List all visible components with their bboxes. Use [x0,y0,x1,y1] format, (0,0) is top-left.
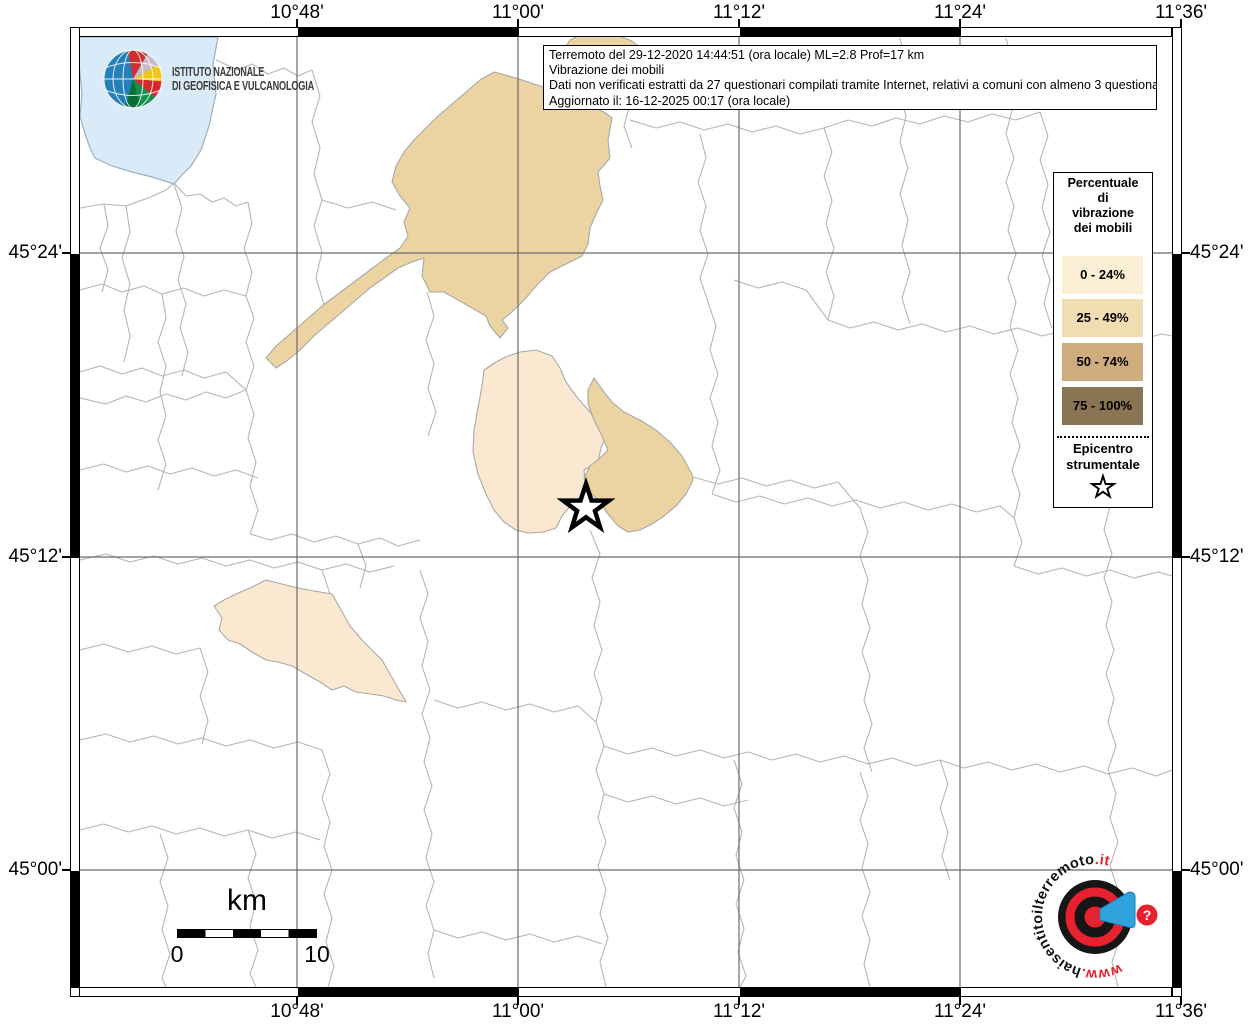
scale-bar-unit: km [202,884,292,918]
axis-label-lat: 45°24' [0,242,62,264]
legend-swatch-50-74: 50 - 74% [1062,343,1143,381]
legend-separator [1057,436,1149,438]
tick-mark [738,19,740,27]
tick-mark [1182,252,1190,254]
axis-label-lat: 45°12' [1190,546,1256,568]
tick-mark [62,556,70,558]
info-line-event: Terremoto del 29-12-2020 14:44:51 (ora l… [549,48,1151,63]
legend-star-icon [1085,473,1121,503]
tick-mark [296,997,298,1005]
legend-box: Percentuale di vibrazione dei mobili 0 -… [1053,172,1153,508]
tick-mark [1180,997,1182,1005]
legend-swatch-75-100: 75 - 100% [1062,387,1143,425]
info-line-updated: Aggiornato il: 16-12-2025 00:17 (ora loc… [549,94,1151,109]
frame-border-top [70,27,1182,37]
map-svg: ISTITUTO NAZIONALE DI GEOFISICA E VULCAN… [80,37,1172,987]
legend-swatch-25-49: 25 - 49% [1062,299,1143,337]
tick-mark [738,997,740,1005]
legend-swatch-0-24: 0 - 24% [1062,256,1143,294]
earthquake-info-box: Terremoto del 29-12-2020 14:44:51 (ora l… [543,45,1157,110]
frame-border-left [70,27,80,997]
tick-mark [1180,19,1182,27]
map-frame: ISTITUTO NAZIONALE DI GEOFISICA E VULCAN… [70,27,1182,997]
scale-bar-start: 0 [163,941,191,968]
tick-mark [62,252,70,254]
tick-mark [296,19,298,27]
hsit-logo: ? www.haisentitoilterremoto.it [1030,852,1158,982]
axis-label-lat: 45°00' [1190,859,1256,881]
frame-border-bottom [70,987,1182,997]
tick-mark [517,19,519,27]
info-line-map-type: Vibrazione dei mobili [549,63,1151,78]
municipality-0-24-southwest [214,580,406,702]
scale-bar-end: 10 [303,941,331,968]
legend-title: Percentuale di vibrazione dei mobili [1054,176,1152,236]
tick-mark [62,869,70,871]
tick-mark [959,19,961,27]
frame-border-right [1172,27,1182,997]
ingv-logo-text-line2: DI GEOFISICA E VULCANOLOGIA [172,78,315,93]
map-canvas: ISTITUTO NAZIONALE DI GEOFISICA E VULCAN… [80,37,1172,987]
ingv-shakemap-page: 10°48' 11°00' 11°12' 11°24' 11°36' 10°48… [0,0,1256,1024]
axis-label-lat: 45°12' [0,546,62,568]
tick-mark [959,997,961,1005]
tick-mark [1182,869,1190,871]
tick-mark [517,997,519,1005]
hsit-question-mark: ? [1143,907,1152,923]
axis-label-lat: 45°00' [0,859,62,881]
info-line-data-note: Dati non verificati estratti da 27 quest… [549,78,1151,93]
ingv-logo-text-line1: ISTITUTO NAZIONALE [172,64,264,79]
scale-bar [177,929,317,938]
axis-label-lat: 45°24' [1190,242,1256,264]
municipality-25-49-verona [266,72,612,368]
tick-mark [1182,556,1190,558]
legend-epicenter-label: Epicentro strumentale [1054,441,1152,472]
